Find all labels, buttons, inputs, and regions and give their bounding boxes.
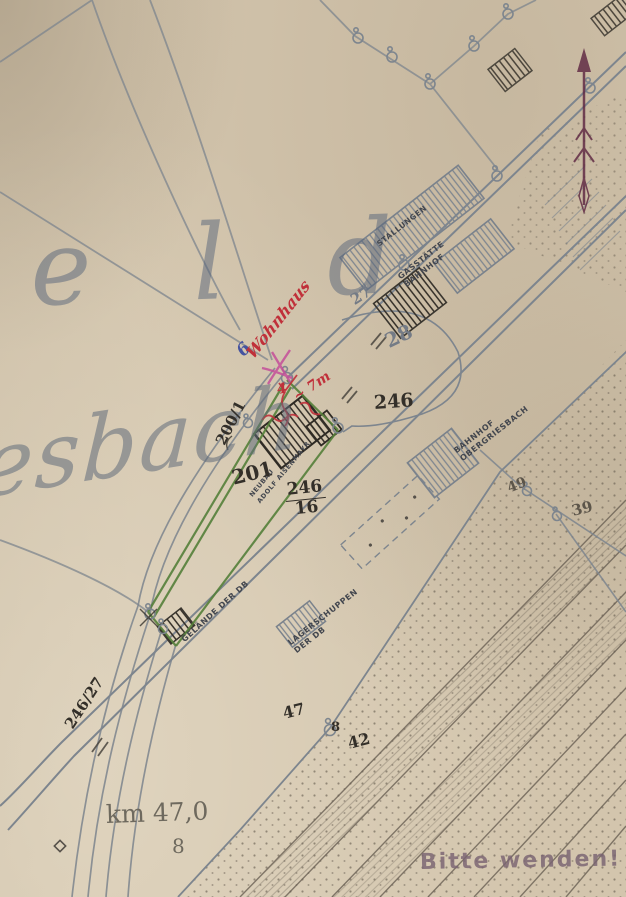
- parcel-number-8: 8: [331, 720, 340, 735]
- cadastral-map-sheet: e l d esbach STALLUNGEN GASSTÄTTE BAHNHO…: [0, 0, 626, 897]
- parcel-number-246-16: 246 16: [284, 478, 327, 520]
- km-marker-label: km 47,0: [105, 796, 208, 829]
- platform-dashed-outline: [341, 475, 440, 568]
- top-corner-building: [591, 0, 626, 36]
- km-marker-square: [54, 840, 65, 851]
- km-marker-sub-label: 8: [172, 834, 185, 858]
- parcel-number-246: 246: [373, 389, 414, 414]
- turn-over-stamp: Bitte wenden!: [420, 846, 622, 875]
- top-right-building: [488, 49, 532, 92]
- field-name-letters: e l d: [28, 194, 430, 330]
